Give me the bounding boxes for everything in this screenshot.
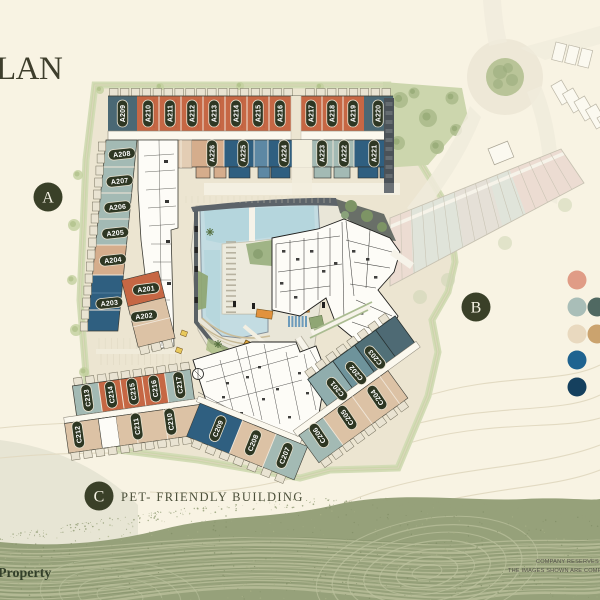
svg-text:COMPANY RESERVES THE RIGHT TO: COMPANY RESERVES THE RIGHT TO MAKE [536,559,600,565]
svg-text:LAN: LAN [0,51,63,87]
svg-text:A218: A218 [330,105,337,123]
svg-text:A217: A217 [309,105,316,123]
svg-text:A226: A226 [210,145,217,163]
svg-text:A211: A211 [168,105,175,122]
svg-text:A224: A224 [282,145,289,163]
svg-text:A221: A221 [372,145,379,163]
svg-text:A219: A219 [351,105,358,123]
svg-text:PET- FRIENDLY BUILDING: PET- FRIENDLY BUILDING [121,490,304,504]
svg-text:B: B [471,300,482,317]
svg-text:A215: A215 [256,105,263,123]
svg-text:A223: A223 [320,145,327,163]
svg-text:A209: A209 [120,105,127,123]
svg-text:C: C [94,489,105,506]
svg-text:A214: A214 [234,105,241,123]
svg-text:A212: A212 [190,105,197,123]
svg-text:A220: A220 [376,105,383,123]
svg-text:A210: A210 [146,105,153,123]
svg-text:A213: A213 [212,105,219,123]
svg-text:A: A [42,190,54,207]
svg-text:A216: A216 [278,105,285,123]
svg-text:A222: A222 [342,145,349,163]
svg-text:Property: Property [0,566,51,581]
svg-text:A225: A225 [241,145,248,163]
svg-text:THE IMAGES SHOWN ARE COMPUTER: THE IMAGES SHOWN ARE COMPUTER GENERATED [508,568,600,574]
